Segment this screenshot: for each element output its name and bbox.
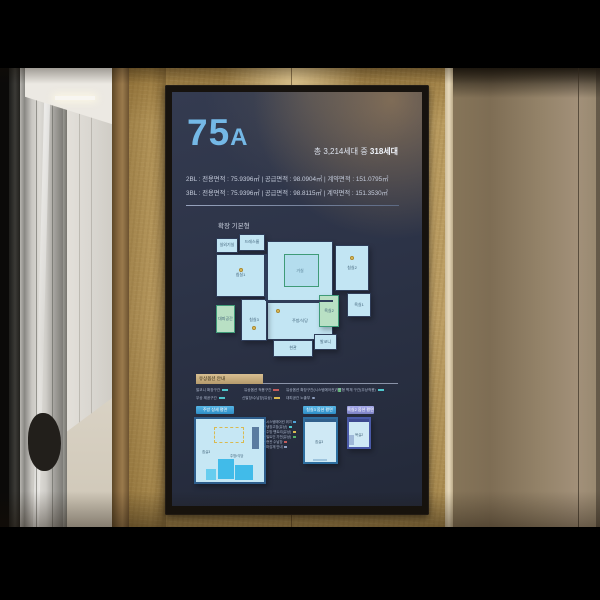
detail-plan-c-title: 욕실2 옵션 평면	[347, 406, 374, 414]
legend-item-label: 유상옵션 확장구간(시스템에어컨)	[286, 388, 336, 392]
option-marker-icon	[239, 268, 243, 272]
mirror-frame-outer	[9, 68, 20, 527]
note-text: 마감재 안내	[266, 445, 283, 449]
room-label: 욕실1	[354, 303, 364, 307]
room-label: 침실2	[347, 266, 357, 270]
detail-plan-b-title: 침실3 옵션 평면	[303, 406, 336, 414]
household-summary: 총 3,214세대 중 318세대	[268, 146, 398, 157]
mini-room-label: 침실3	[202, 449, 210, 454]
note-chip-icon	[289, 426, 292, 428]
legend-item: 유상옵션 적용구간	[244, 388, 279, 393]
unit-type-number: 75	[187, 112, 230, 153]
doorframe-dark-edge	[0, 68, 9, 527]
highlight-zone	[235, 465, 253, 480]
legend-item-label: 대피공간 노출부	[286, 396, 310, 400]
room-bed2: 침실2	[335, 245, 369, 291]
room-label: 실외기실	[220, 243, 235, 247]
note-chip-icon	[293, 436, 296, 438]
wall-line	[265, 254, 267, 301]
plan-fixture	[252, 427, 259, 449]
area-line-2bl: 2BL : 전용면적 : 75.9396㎡ | 공급면적 : 98.0904㎡ …	[186, 174, 400, 183]
highlight-zone	[218, 459, 234, 479]
section-divider	[186, 205, 399, 206]
mirror-glass	[25, 68, 63, 527]
unit-type-letter: A	[230, 124, 248, 151]
room-label: 주방/식당	[292, 319, 308, 323]
room-entry: 현관	[273, 340, 313, 357]
option-dashed-outline	[214, 427, 244, 443]
photo-stage: 75A 총 3,214세대 중 318세대 2BL : 전용면적 : 75.93…	[0, 0, 600, 600]
detail-plan-b: 침실3	[303, 417, 338, 464]
room-label: 드레스룸	[245, 240, 260, 244]
legend-teal-line-icon	[222, 389, 228, 391]
door-notch	[313, 459, 327, 461]
note-chip-icon	[284, 446, 287, 448]
mini-room-label: 욕실2	[355, 432, 363, 437]
detail-plan-a: 침실3 주방/식당	[194, 417, 266, 484]
room-label: 침실3	[249, 318, 259, 322]
legend-item: 가변형 벽체 구간(무상적용)	[335, 388, 384, 393]
legend-dot-icon	[312, 397, 315, 400]
right-wall-seam	[578, 68, 579, 527]
right-wall-edge	[596, 68, 600, 527]
note-chip-icon	[293, 421, 296, 423]
household-summary-prefix: 총 3,214세대 중	[314, 147, 370, 156]
plan-type-label: 확장 기본형	[218, 220, 250, 230]
plan-step	[349, 435, 354, 445]
room-label: 대피공간	[218, 317, 233, 321]
legend-item: 신발장/수납장(유상)	[242, 396, 280, 401]
wall-seam	[291, 68, 292, 85]
room-label: 침실1	[236, 273, 246, 277]
option-marker-icon	[350, 256, 354, 260]
legend-red-line-icon	[273, 389, 279, 391]
living-expansion-outline	[284, 254, 319, 287]
legend-item: 유상옵션 확장구간(시스템에어컨)	[286, 388, 341, 393]
legend-item: 무상 제공구간	[196, 396, 225, 401]
legend-item: 발코니 확장구간	[196, 388, 228, 393]
legend-item-label: 무상 제공구간	[196, 396, 217, 400]
display-screen: 75A 총 3,214세대 중 318세대 2BL : 전용면적 : 75.93…	[172, 92, 422, 506]
detail-plan-c: 욕실2	[347, 417, 371, 449]
room-label: 현관	[289, 346, 296, 350]
mini-room-label: 주방/식당	[230, 453, 243, 458]
option-marker-icon	[276, 309, 280, 313]
legend-item-label: 발코니 확장구간	[196, 388, 220, 392]
floorplan: 실외기실 드레스룸 침실1 거실 침실2 욕실1 주방/식당 침실3 대	[210, 234, 380, 358]
household-summary-count: 318세대	[370, 147, 398, 156]
legend-item-label: 유상옵션 적용구간	[244, 388, 271, 392]
room-outdoor-unit: 실외기실	[216, 238, 238, 253]
room-bed1: 침실1	[216, 254, 265, 297]
detail-plan-a-title: 주방 상세 평면	[196, 406, 234, 414]
option-marker-icon	[252, 326, 256, 330]
room-shelter: 대피공간	[216, 305, 235, 333]
wall-line	[267, 300, 333, 302]
unit-type-title: 75A	[187, 114, 249, 152]
reflected-dark-object	[28, 413, 61, 471]
wall-seam	[291, 515, 292, 527]
wall-corner-trim	[445, 68, 453, 527]
highlight-zone	[206, 469, 216, 480]
wood-trim	[112, 68, 129, 527]
hallway-photo: 75A 총 3,214세대 중 318세대 2BL : 전용면적 : 75.93…	[0, 68, 600, 527]
legend-header: 유상옵션 안내	[196, 374, 263, 384]
room-label: 발코니	[320, 340, 331, 344]
mini-room-label: 침실3	[315, 439, 323, 444]
legend-teal-line-icon	[219, 397, 225, 399]
legend-item-label: 가변형 벽체 구간(무상적용)	[335, 388, 376, 392]
note-chip-icon	[293, 431, 296, 433]
room-dress: 드레스룸	[239, 234, 265, 251]
legend-yellow-line-icon	[274, 397, 280, 399]
room-living: 거실	[267, 241, 333, 301]
plan-wall-top	[305, 419, 336, 422]
room-bed3: 침실3	[241, 299, 267, 341]
legend-teal-line-icon	[378, 389, 384, 391]
note-chip-icon	[284, 441, 287, 443]
room-label: 욕실2	[324, 309, 334, 313]
room-bath1: 욕실1	[347, 293, 371, 317]
legend-item-label: 신발장/수납장(유상)	[242, 396, 272, 400]
area-line-3bl: 3BL : 전용면적 : 75.9396㎡ | 공급면적 : 98.8115㎡ …	[186, 188, 400, 197]
legend-item: 대피공간 노출부	[286, 396, 315, 401]
ceiling-light	[55, 96, 95, 100]
plan-wall-top	[349, 419, 369, 422]
room-balcony: 발코니	[314, 334, 337, 350]
legend-rule	[263, 383, 398, 384]
wall-pillar-shading	[129, 68, 166, 527]
